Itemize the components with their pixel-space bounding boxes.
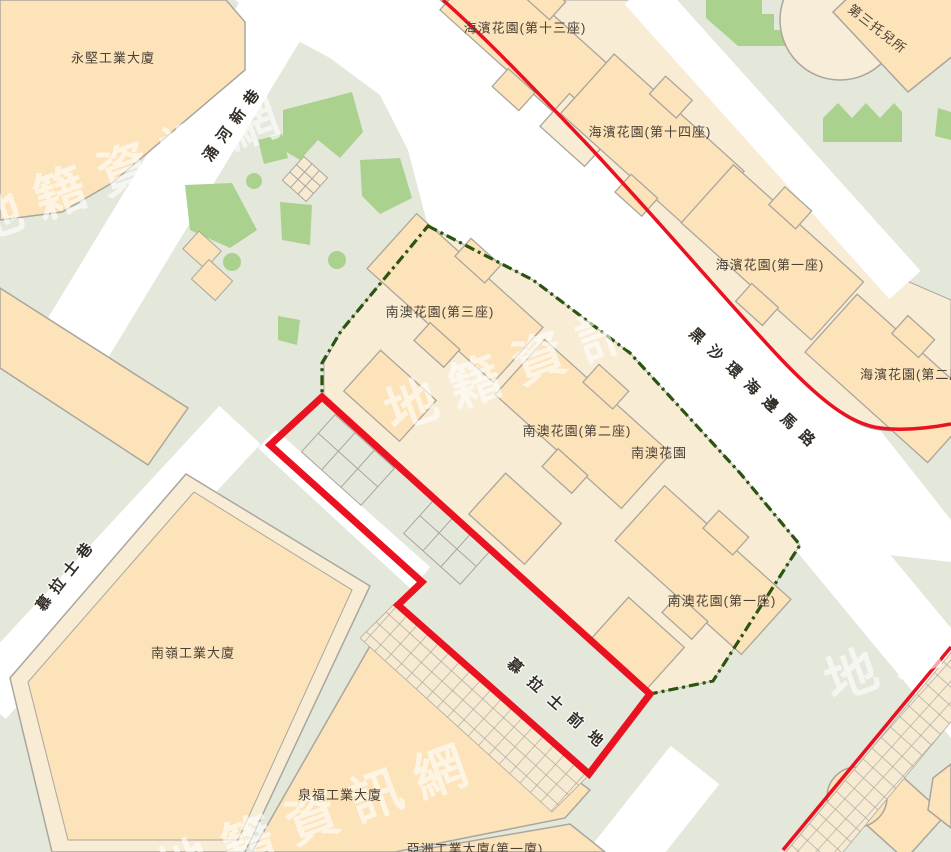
- map-canvas[interactable]: [0, 0, 951, 852]
- map-viewport: 地籍資訊網 地籍資訊網 地籍資訊網 地籍資訊網 永堅工業大廈 海濱花園(第十三座…: [0, 0, 951, 852]
